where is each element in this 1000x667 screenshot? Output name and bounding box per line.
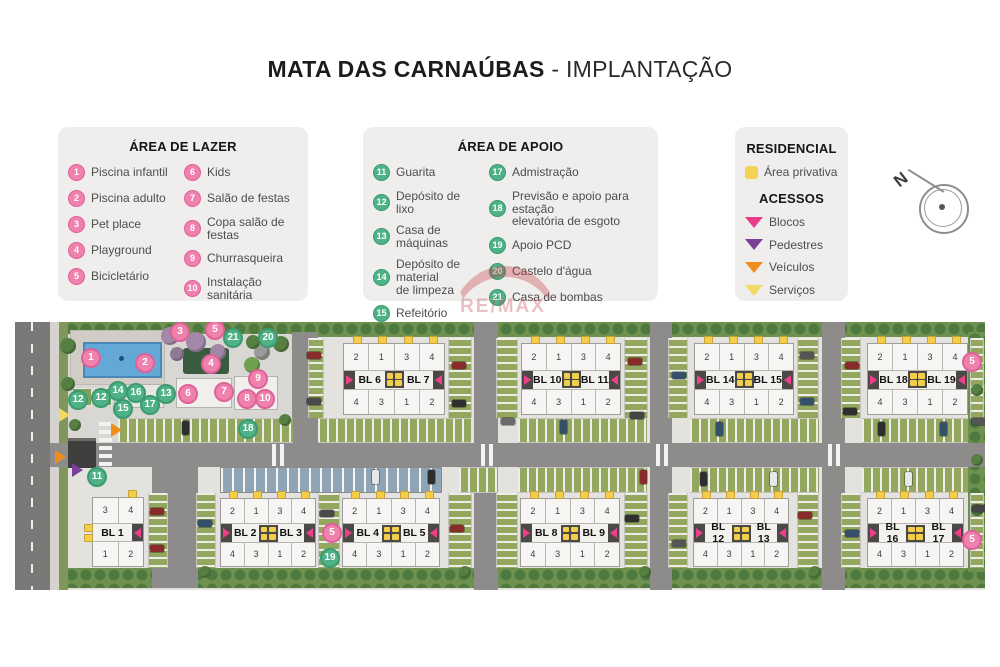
legend-label-2: Piscina adulto (91, 192, 166, 205)
area-privativa-marker-icon (581, 336, 590, 344)
unit-cell: 4 (292, 499, 315, 523)
legend-marker-4-icon: 4 (68, 242, 85, 259)
unit-cell: 1 (245, 499, 269, 523)
block-label: BL 7 (404, 374, 434, 386)
car-icon (640, 470, 647, 484)
area-privativa-marker-icon (729, 336, 738, 344)
legend-area-de-apoio: ÁREA DE APOIO 11Guarita12Depósito de lix… (363, 127, 658, 301)
tree-icon (199, 566, 211, 578)
block-entry-right (782, 371, 793, 389)
legend-marker-7-icon: 7 (184, 190, 201, 207)
car-icon (307, 352, 321, 359)
unit-cell: 2 (596, 390, 620, 414)
blocos-access-icon (345, 528, 352, 538)
blocos-access-icon (306, 528, 313, 538)
unit-cell: 2 (694, 499, 718, 523)
area-privativa-marker-icon (556, 336, 565, 344)
unit-cell: 2 (940, 543, 963, 566)
page: MATA DAS CARNAÚBAS - IMPLANTAÇÃO ÁREA DE… (0, 0, 1000, 667)
legend-label-15: Refeitório (396, 307, 447, 320)
page-title: MATA DAS CARNAÚBAS - IMPLANTAÇÃO (0, 56, 1000, 83)
area-privativa-marker-icon (704, 336, 713, 344)
car-icon (452, 400, 466, 407)
legend-item-pedestres: Pedestres (745, 239, 838, 252)
parking-strip-bottom-4 (496, 493, 518, 568)
legend-marker-3-icon: 3 (68, 216, 85, 233)
car-icon (625, 515, 639, 522)
compass-north-label: N (890, 168, 912, 191)
unit-cell: 1 (269, 543, 293, 566)
legend-label-17: Admistração (512, 166, 579, 179)
parking-apron-bottom-0 (459, 467, 498, 493)
legend-item-17: 17Admistração (489, 164, 648, 181)
unit-cell: 4 (521, 543, 546, 566)
legend-item-10: 10Instalação sanitária (184, 276, 298, 301)
unit-cell: 4 (695, 390, 720, 414)
blocos-access-icon (346, 375, 353, 385)
utility-cluster-icon (908, 371, 927, 388)
map-marker-11: 11 (87, 467, 107, 487)
area-privativa-swatch-icon (745, 166, 758, 179)
unit-cell: 3 (892, 543, 916, 566)
legend-label-3: Pet place (91, 218, 141, 231)
area-privativa-marker-icon (925, 491, 934, 499)
legend-item-21: 21Casa de bombas (489, 289, 648, 306)
unit-cell: 3 (745, 344, 770, 370)
map-marker-5: 5 (962, 352, 982, 372)
block-entry-left (221, 524, 232, 541)
utility-cluster-icon (382, 525, 401, 542)
title-suffix: - IMPLANTAÇÃO (545, 56, 733, 82)
legend-item-9: 9Churrasqueira (184, 250, 298, 267)
block-label: BL 5 (401, 527, 429, 539)
legend-label-11: Guarita (396, 166, 435, 179)
tree-icon (279, 414, 291, 426)
area-privativa-marker-icon (301, 491, 310, 499)
unit-cell: 4 (940, 499, 963, 523)
map-marker-3: 3 (170, 322, 190, 342)
legend-item-veículos: Veículos (745, 261, 838, 274)
area-privativa-marker-icon (726, 491, 735, 499)
block-label: BL 1 (93, 527, 132, 539)
block-entry-right (608, 524, 619, 541)
area-privativa-marker-icon (555, 491, 564, 499)
legend-item-area-privativa: Área privativa (745, 166, 838, 179)
legend-item-3: 3Pet place (68, 216, 174, 233)
unit-cell: 1 (367, 499, 391, 523)
compass-needle-icon (908, 169, 944, 193)
unit-cell: 4 (343, 543, 367, 566)
unit-cell: 4 (769, 344, 793, 370)
block-bl12-bl13: 2134BL 12BL 134312 (693, 498, 789, 567)
car-icon (560, 420, 567, 434)
legend-item-11: 11Guarita (373, 164, 479, 181)
unit-cell: 3 (742, 499, 766, 523)
block-entry-right (132, 524, 143, 542)
blocos-access-icon (430, 528, 437, 538)
blocos-access-icon (958, 375, 965, 385)
legend-marker-8-icon: 8 (184, 220, 201, 237)
block-entry-left (695, 371, 706, 389)
block-label: BL 3 (278, 527, 305, 539)
legend-area-de-lazer: ÁREA DE LAZER 1Piscina infantil2Piscina … (58, 127, 308, 301)
legend-marker-14-icon: 14 (373, 269, 390, 286)
unit-cell: 3 (392, 499, 416, 523)
block-entry-right (433, 371, 444, 389)
crosswalk-3 (828, 444, 840, 466)
title-main: MATA DAS CARNAÚBAS (268, 56, 545, 82)
legend-item-20: 20Castelo d'água (489, 263, 648, 280)
map-marker-15: 15 (113, 399, 133, 419)
legend-label-12: Depósito de lixo (396, 190, 479, 215)
veículos-arrow-icon (745, 262, 763, 273)
tree-icon (69, 419, 81, 431)
car-icon (628, 358, 642, 365)
area-privativa-marker-icon (531, 336, 540, 344)
car-icon (700, 472, 707, 486)
area-privativa-marker-icon (580, 491, 589, 499)
legend-marker-21-icon: 21 (489, 289, 506, 306)
legend-apoio-title: ÁREA DE APOIO (373, 139, 648, 154)
area-privativa-marker-icon (927, 336, 936, 344)
block-entry-left (344, 371, 355, 389)
tree-icon (170, 347, 184, 361)
block-entry-left (868, 524, 879, 541)
car-icon (150, 545, 164, 552)
map-marker-18: 18 (238, 419, 258, 439)
parking-strip-top-7 (970, 338, 984, 418)
area-privativa-marker-icon (606, 336, 615, 344)
parking-strip-top-2 (496, 338, 518, 418)
unit-cell: 4 (694, 543, 718, 566)
legend-item-1: 1Piscina infantil (68, 164, 174, 181)
area-privativa-marker-icon (376, 491, 385, 499)
unit-cell: 2 (695, 344, 720, 370)
legend-item-4: 4Playground (68, 242, 174, 259)
block-entry-right (428, 524, 439, 541)
legend-residencial-acessos: RESIDENCIAL Área privativa ACESSOS Bloco… (735, 127, 848, 301)
map-marker-17: 17 (140, 395, 160, 415)
area-privativa-marker-icon (353, 336, 362, 344)
unit-cell: 4 (596, 344, 620, 370)
compass: N (893, 158, 993, 258)
car-icon (307, 398, 321, 405)
area-privativa-marker-icon (229, 491, 238, 499)
area-privativa-marker-icon (754, 336, 763, 344)
legend-marker-12-icon: 12 (373, 194, 390, 211)
car-icon (843, 408, 857, 415)
unit-cell: 3 (916, 499, 940, 523)
unit-cell: 4 (868, 390, 893, 414)
car-icon (630, 412, 644, 419)
map-marker-12: 12 (68, 390, 88, 410)
block-bl6-bl7: 2134BL 6BL 74312 (343, 343, 445, 415)
legend-acessos-title: ACESSOS (745, 191, 838, 206)
block-entry-right (956, 371, 967, 389)
parking-apron-bottom-3 (862, 467, 968, 493)
legend-marker-18-icon: 18 (489, 200, 506, 217)
legend-marker-20-icon: 20 (489, 263, 506, 280)
acessos-label: Veículos (769, 261, 814, 274)
tree-icon (61, 377, 75, 391)
utility-cluster-icon (562, 371, 581, 388)
utility-cluster-icon (561, 525, 580, 542)
area-privativa-marker-icon (902, 336, 911, 344)
map-marker-5: 5 (322, 523, 342, 543)
legend-lazer-title: ÁREA DE LAZER (68, 139, 298, 154)
blocos-access-icon (610, 528, 617, 538)
legend-label-8: Copa salão de festas (207, 216, 298, 241)
blocos-access-icon (870, 528, 877, 538)
blocos-access-icon (870, 375, 877, 385)
crosswalk-1 (481, 444, 493, 466)
legend-marker-5-icon: 5 (68, 268, 85, 285)
veiculos-access-icon (55, 450, 66, 464)
legend-item-5: 5Bicicletário (68, 268, 174, 285)
unit-cell: 3 (918, 344, 943, 370)
unit-cell: 3 (718, 543, 742, 566)
unit-cell: 1 (395, 390, 420, 414)
map-marker-2: 2 (135, 353, 155, 373)
unit-cell: 1 (718, 499, 742, 523)
unit-cell: 4 (119, 498, 144, 523)
block-entry-right (304, 524, 315, 541)
block-entry-left (868, 371, 879, 389)
unit-cell: 1 (93, 542, 119, 566)
area-privativa-marker-icon (876, 491, 885, 499)
unit-cell: 1 (745, 390, 770, 414)
unit-cell: 2 (765, 543, 788, 566)
unit-cell: 2 (769, 390, 793, 414)
parking-strip-top-6 (841, 338, 861, 418)
legend-label-1: Piscina infantil (91, 166, 168, 179)
road-main-horizontal (50, 443, 985, 467)
car-icon (198, 520, 212, 527)
legend-marker-10-icon: 10 (184, 280, 201, 297)
map-marker-7: 7 (214, 382, 234, 402)
area-privativa-marker-icon (429, 336, 438, 344)
unit-cell: 3 (571, 499, 596, 523)
pedestres-arrow-icon (745, 239, 763, 250)
legend-marker-9-icon: 9 (184, 250, 201, 267)
unit-cell: 3 (269, 499, 293, 523)
legend-item-19: 19Apoio PCD (489, 237, 648, 254)
unit-cell: 3 (546, 543, 571, 566)
utility-cluster-icon (906, 525, 925, 542)
car-icon (716, 422, 723, 436)
tree-icon (971, 454, 983, 466)
area-privativa-marker-icon (84, 534, 93, 542)
area-privativa-marker-icon (128, 490, 137, 498)
block-entry-left (694, 524, 705, 541)
utility-cluster-icon (732, 525, 751, 542)
unit-cell: 4 (221, 543, 245, 566)
block-label: BL 15 (754, 374, 783, 386)
parking-strip-top-0 (308, 338, 324, 418)
legend-label-5: Bicicletário (91, 270, 149, 283)
area-privativa-marker-icon (779, 336, 788, 344)
car-icon (845, 362, 859, 369)
unit-cell: 1 (720, 344, 745, 370)
parking-strip-bottom-1 (196, 493, 216, 568)
map-marker-14: 14 (108, 381, 128, 401)
block-label: BL 10 (533, 374, 562, 386)
unit-cell: 3 (367, 543, 391, 566)
blocos-access-icon (611, 375, 618, 385)
legend-item-serviços: Serviços (745, 284, 838, 297)
utility-cluster-icon (735, 371, 754, 388)
block-bl1: 34BL 112 (92, 497, 144, 567)
legend-item-14: 14Depósito de material de limpeza (373, 258, 479, 296)
block-label: BL 13 (751, 521, 778, 545)
unit-cell: 1 (918, 390, 943, 414)
car-icon (800, 398, 814, 405)
acessos-label: Serviços (769, 284, 815, 297)
car-icon (798, 512, 812, 519)
road-left-centerline (31, 322, 33, 590)
block-label: BL 14 (706, 374, 735, 386)
unit-cell: 1 (392, 543, 416, 566)
unit-cell: 3 (395, 344, 420, 370)
unit-cell: 3 (547, 390, 572, 414)
area-privativa-marker-icon (425, 491, 434, 499)
legend-label-10: Instalação sanitária (207, 276, 298, 301)
unit-cell: 3 (893, 390, 918, 414)
parking-apron-top-0 (118, 418, 293, 443)
area-privativa-marker-icon (351, 491, 360, 499)
tree-icon (809, 566, 821, 578)
area-privativa-marker-icon (84, 524, 93, 532)
parking-apron-bottom-2 (690, 467, 819, 493)
unit-cell: 1 (546, 499, 571, 523)
area-privativa-marker-icon (877, 336, 886, 344)
block-entry-left (521, 524, 532, 541)
tree-icon (971, 384, 983, 396)
tree-icon (60, 338, 76, 354)
legend-label-20: Castelo d'água (512, 265, 592, 278)
area-privativa-marker-icon (900, 491, 909, 499)
blocos-access-icon (696, 528, 703, 538)
car-icon (672, 372, 686, 379)
unit-cell: 1 (893, 344, 918, 370)
car-icon (182, 421, 189, 435)
unit-cell: 2 (521, 499, 546, 523)
parking-apron-top-1 (318, 418, 471, 443)
car-icon (878, 422, 885, 436)
legend-item-8: 8Copa salão de festas (184, 216, 298, 241)
unit-cell: 2 (420, 390, 444, 414)
blocos-access-icon (223, 528, 230, 538)
utility-cluster-icon (385, 371, 404, 388)
legend-marker-19-icon: 19 (489, 237, 506, 254)
block-bl10-bl11: 2134BL 10BL 114312 (521, 343, 621, 415)
unit-cell: 2 (119, 542, 144, 566)
block-label: BL 18 (879, 374, 908, 386)
compass-center-dot-icon (939, 204, 945, 210)
crosswalk-0 (272, 444, 284, 466)
area-privativa-label: Área privativa (764, 166, 837, 179)
unit-cell: 3 (572, 344, 597, 370)
legend-label-14: Depósito de material de limpeza (396, 258, 479, 296)
car-icon (372, 470, 379, 484)
car-icon (450, 525, 464, 532)
car-icon (150, 508, 164, 515)
legend-marker-11-icon: 11 (373, 164, 390, 181)
block-label: BL 17 (925, 521, 952, 545)
map-marker-4: 4 (201, 354, 221, 374)
area-privativa-marker-icon (400, 491, 409, 499)
unit-cell: 4 (522, 390, 547, 414)
blocos-access-icon (435, 375, 442, 385)
map-marker-19: 19 (320, 548, 340, 568)
area-privativa-marker-icon (530, 491, 539, 499)
area-privativa-marker-icon (949, 491, 958, 499)
area-privativa-marker-icon (378, 336, 387, 344)
area-privativa-marker-icon (702, 491, 711, 499)
serviços-arrow-icon (745, 285, 763, 296)
parking-strip-bottom-0 (148, 493, 168, 568)
block-label: BL 11 (581, 374, 610, 386)
parking-strip-top-5 (797, 338, 819, 418)
parking-strip-bottom-5 (624, 493, 648, 568)
area-privativa-marker-icon (404, 336, 413, 344)
car-icon (845, 530, 859, 537)
unit-cell: 4 (765, 499, 788, 523)
block-label: BL 6 (355, 374, 385, 386)
legend-label-4: Playground (91, 244, 152, 257)
block-label: BL 16 (879, 521, 906, 545)
unit-cell: 4 (420, 344, 444, 370)
legend-marker-17-icon: 17 (489, 164, 506, 181)
map-marker-9: 9 (248, 369, 268, 389)
car-icon (452, 362, 466, 369)
block-label: BL 9 (580, 527, 609, 539)
legend-item-18: 18Previsão e apoio para estação elevatór… (489, 190, 648, 228)
blocos-access-icon (523, 528, 530, 538)
parking-apron-top-3 (690, 418, 819, 443)
block-label: BL 12 (705, 521, 732, 545)
blocos-access-icon (524, 375, 531, 385)
car-icon (940, 422, 947, 436)
car-icon (501, 418, 515, 425)
unit-cell: 4 (344, 390, 369, 414)
block-label: BL 4 (354, 527, 382, 539)
blocos-arrow-icon (745, 217, 763, 228)
car-icon (770, 472, 777, 486)
legend-marker-15-icon: 15 (373, 305, 390, 322)
acessos-label: Pedestres (769, 239, 823, 252)
unit-cell: 2 (343, 499, 367, 523)
block-bl2-bl3: 2134BL 2BL 34312 (220, 498, 316, 567)
legend-item-15: 15Refeitório (373, 305, 479, 322)
legend-label-9: Churrasqueira (207, 252, 283, 265)
legend-item-blocos: Blocos (745, 216, 838, 229)
unit-cell: 3 (369, 390, 394, 414)
unit-cell: 2 (522, 344, 547, 370)
unit-cell: 2 (416, 543, 439, 566)
car-icon (320, 510, 334, 517)
car-icon (972, 418, 985, 425)
car-icon (905, 472, 912, 486)
legend-item-13: 13Casa de máquinas (373, 224, 479, 249)
parking-strip-bottom-7 (797, 493, 819, 568)
unit-cell: 4 (416, 499, 439, 523)
legend-label-19: Apoio PCD (512, 239, 571, 252)
area-privativa-marker-icon (952, 336, 961, 344)
parking-strip-top-3 (624, 338, 648, 418)
car-icon (428, 470, 435, 484)
map-marker-6: 6 (178, 384, 198, 404)
